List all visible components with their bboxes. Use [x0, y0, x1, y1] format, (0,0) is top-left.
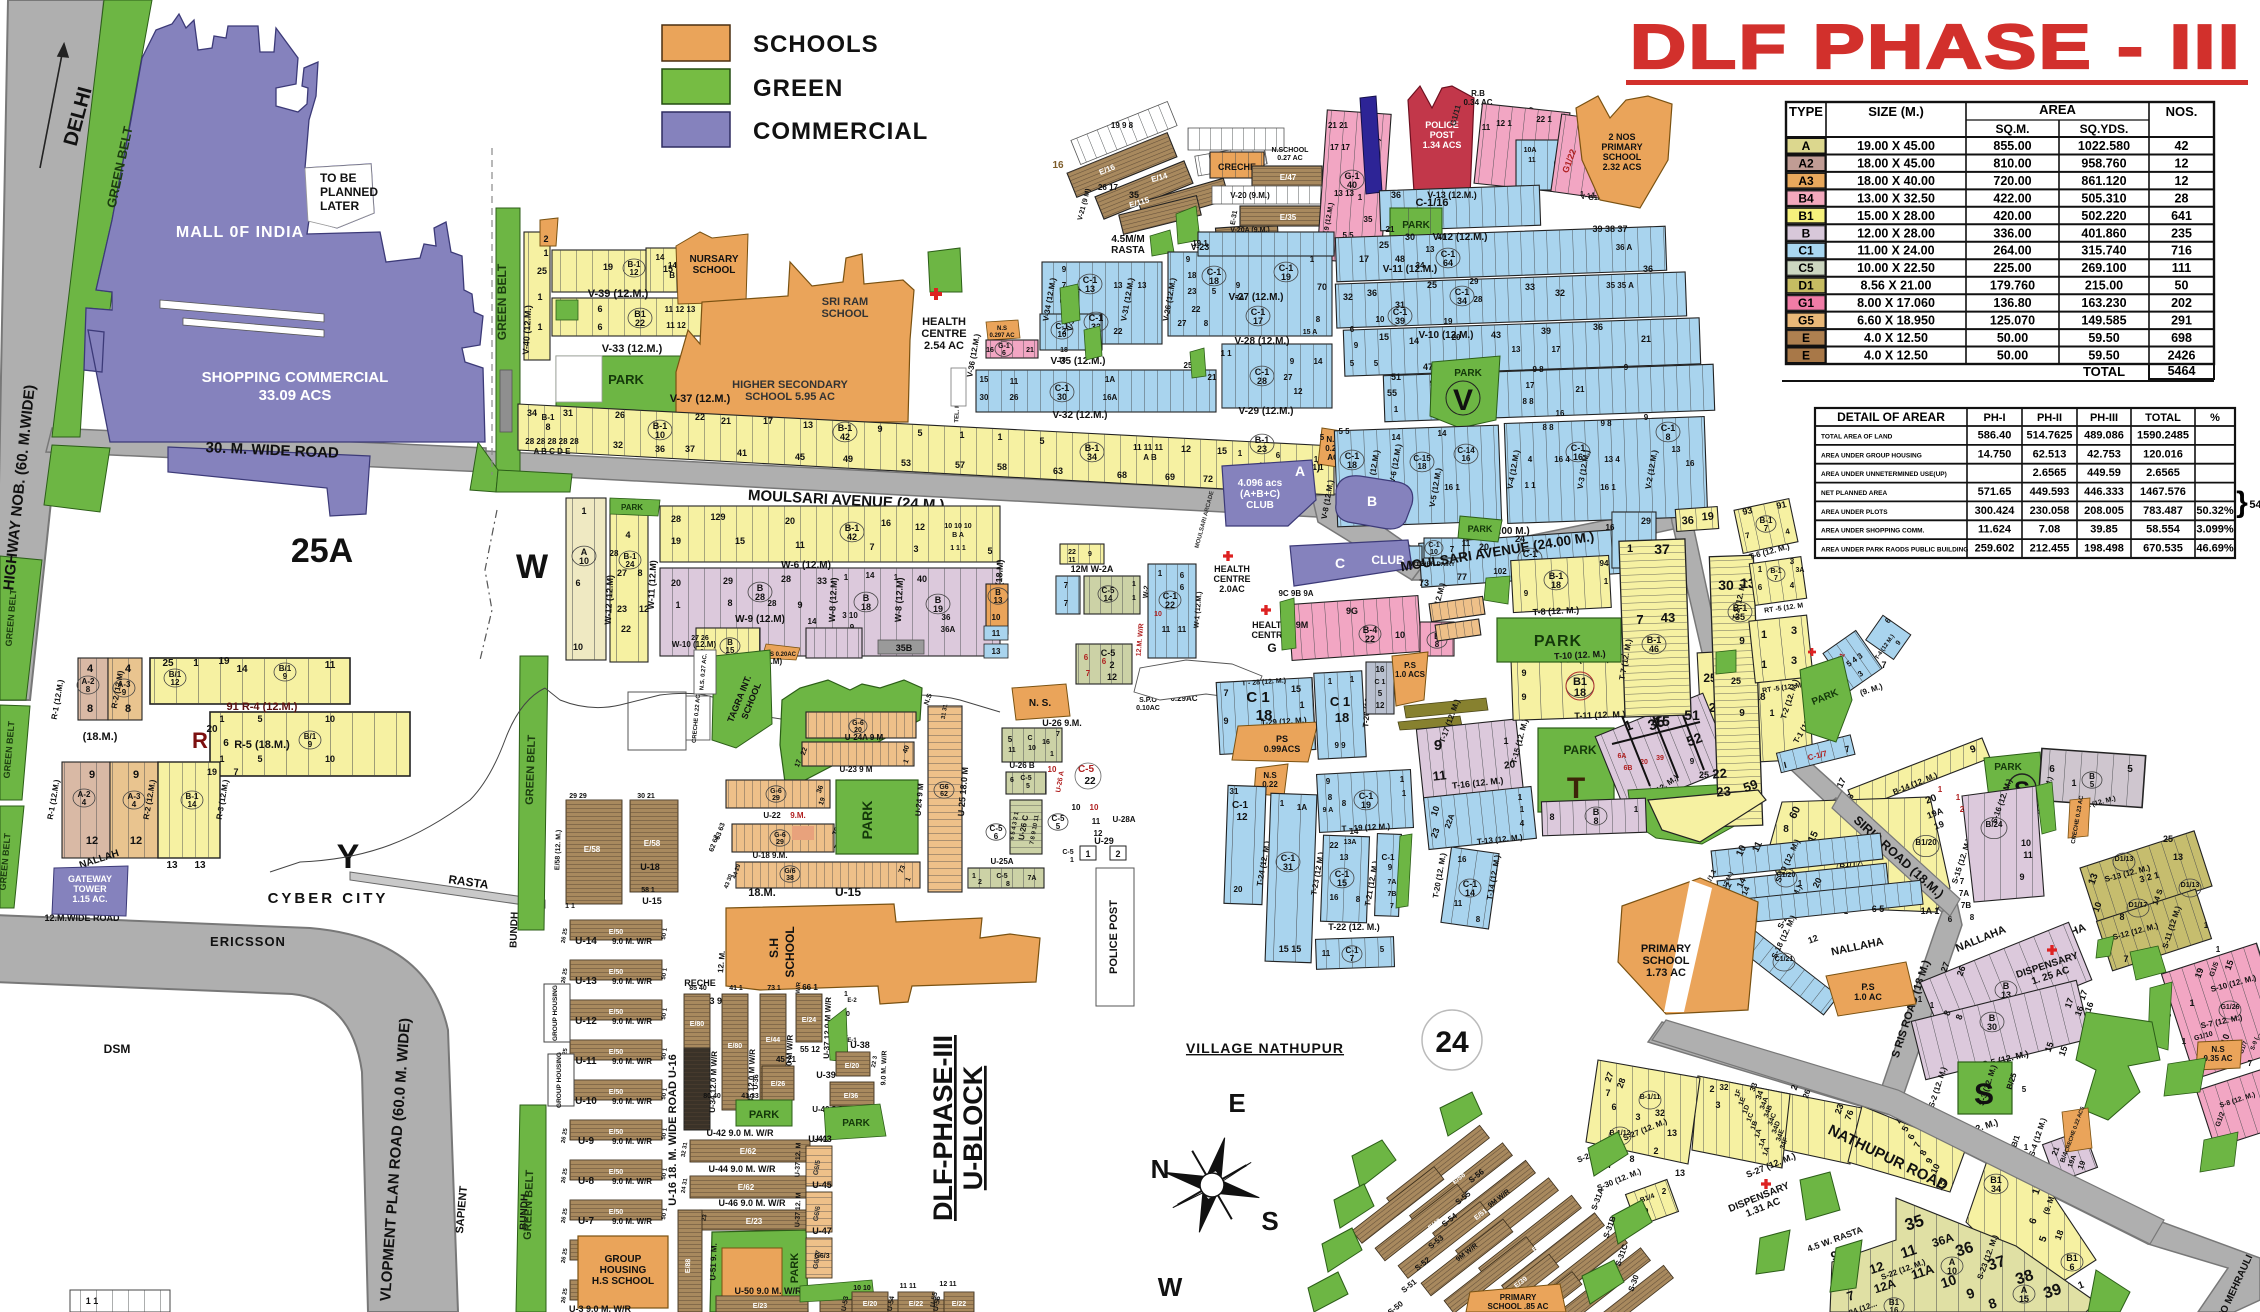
- svg-text:16: 16: [881, 518, 891, 528]
- svg-text:5: 5: [1378, 689, 1383, 698]
- svg-text:AREA: AREA: [2039, 102, 2076, 117]
- svg-text:7B: 7B: [1961, 901, 1971, 910]
- svg-text:120.016: 120.016: [2143, 448, 2183, 460]
- svg-text:G-1: G-1: [998, 343, 1010, 350]
- svg-text:22: 22: [1114, 327, 1123, 336]
- svg-text:C-5: C-5: [996, 873, 1007, 880]
- svg-text:7: 7: [2123, 954, 2128, 964]
- svg-text:1: 1: [219, 754, 224, 764]
- svg-text:8: 8: [545, 422, 550, 432]
- svg-text:16: 16: [1556, 409, 1565, 418]
- svg-text:13: 13: [166, 860, 178, 871]
- svg-text:C: C: [1027, 735, 1032, 742]
- svg-text:25: 25: [2163, 834, 2173, 844]
- svg-text:U-10: U-10: [575, 1096, 597, 1107]
- svg-text:43: 43: [1661, 610, 1675, 625]
- svg-text:1: 1: [537, 292, 542, 302]
- svg-text:9.0 M. W/R: 9.0 M. W/R: [612, 1017, 652, 1026]
- svg-text:15: 15: [980, 375, 989, 384]
- svg-text:14: 14: [236, 664, 248, 675]
- svg-text:9: 9: [1521, 692, 1526, 702]
- svg-text:U-7: U-7: [578, 1216, 595, 1227]
- svg-text:28: 28: [768, 599, 777, 608]
- svg-text:G6: G6: [939, 784, 948, 791]
- svg-text:9: 9: [877, 424, 882, 434]
- svg-text:6: 6: [2069, 1262, 2074, 1272]
- svg-text:GROUP HOUSING: GROUP HOUSING: [556, 1052, 563, 1108]
- svg-text:16: 16: [1042, 739, 1050, 746]
- svg-text:DSM: DSM: [104, 1042, 131, 1056]
- svg-text:3 10: 3 10: [842, 611, 858, 620]
- svg-text:GATEWAYTOWER1.15 AC.: GATEWAYTOWER1.15 AC.: [68, 874, 112, 904]
- svg-text:E/80: E/80: [728, 1043, 743, 1050]
- svg-text:28 28 28 28 28: 28 28 28 28 28: [525, 437, 579, 446]
- svg-text:TOTAL: TOTAL: [2145, 412, 2181, 424]
- svg-text:489.086: 489.086: [2084, 429, 2124, 441]
- svg-text:31: 31: [1283, 862, 1293, 872]
- svg-text:49: 49: [843, 454, 853, 464]
- svg-text:37: 37: [1654, 541, 1670, 557]
- svg-text:42.753: 42.753: [2087, 448, 2121, 460]
- svg-text:E/23: E/23: [746, 1217, 763, 1226]
- svg-text:V: V: [1453, 384, 1473, 417]
- svg-text:31: 31: [563, 408, 573, 418]
- svg-text:19: 19: [1361, 800, 1371, 810]
- svg-text:39: 39: [1541, 326, 1551, 336]
- svg-text:A3: A3: [1798, 174, 1814, 188]
- svg-text:7: 7: [1086, 669, 1091, 678]
- svg-text:11: 11: [795, 540, 805, 550]
- svg-text:420.00: 420.00: [1993, 209, 2031, 223]
- svg-text:14: 14: [808, 617, 817, 626]
- svg-text:12: 12: [915, 522, 925, 532]
- svg-text:7A: 7A: [1236, 295, 1245, 302]
- svg-text:14: 14: [1438, 429, 1447, 438]
- svg-text:15: 15: [1379, 332, 1389, 342]
- svg-text:5: 5: [1320, 433, 1325, 442]
- svg-text:20: 20: [671, 578, 681, 588]
- svg-text:E/50: E/50: [609, 1209, 624, 1216]
- svg-text:17: 17: [763, 416, 773, 426]
- svg-text:48: 48: [1395, 254, 1405, 264]
- svg-text:9: 9: [1624, 363, 1629, 372]
- svg-text:9.0 M. W/R: 9.0 M. W/R: [612, 1097, 652, 1106]
- svg-text:29: 29: [1470, 277, 1479, 286]
- svg-text:33: 33: [817, 576, 827, 586]
- svg-text:85 40: 85 40: [689, 985, 707, 992]
- svg-text:13: 13: [1512, 345, 1521, 354]
- svg-text:1: 1: [1761, 629, 1767, 641]
- svg-text:U-29: U-29: [1094, 836, 1114, 846]
- svg-text:1: 1: [894, 573, 899, 582]
- svg-text:6: 6: [1350, 325, 1355, 334]
- svg-text:S: S: [1261, 1206, 1278, 1236]
- svg-text:1: 1: [1518, 793, 1523, 802]
- svg-text:5: 5: [257, 754, 262, 764]
- svg-text:13A: 13A: [1344, 839, 1357, 846]
- svg-text:25: 25: [1731, 676, 1741, 686]
- svg-text:D1: D1: [1798, 279, 1814, 293]
- svg-text:G-6: G-6: [774, 832, 786, 839]
- svg-text:2: 2: [1653, 1146, 1658, 1156]
- svg-text:62: 62: [940, 791, 948, 798]
- svg-text:1: 1: [1050, 751, 1054, 758]
- svg-text:11: 11: [1178, 625, 1187, 634]
- svg-text:810.00: 810.00: [1993, 156, 2031, 170]
- svg-text:GREEN BELT: GREEN BELT: [495, 263, 509, 340]
- svg-text:5: 5: [1212, 287, 1217, 296]
- svg-text:36: 36: [1593, 322, 1603, 332]
- svg-text:9: 9: [1326, 777, 1331, 786]
- svg-text:C-1: C-1: [1232, 800, 1249, 811]
- svg-text:25: 25: [537, 266, 547, 276]
- svg-text:V-29 (12.M.): V-29 (12.M.): [1238, 406, 1293, 417]
- svg-text:149.585: 149.585: [2081, 314, 2126, 328]
- svg-text:15: 15: [1337, 878, 1347, 888]
- svg-text:U-18 9.M.: U-18 9.M.: [752, 851, 787, 860]
- svg-text:U-BLOCK: U-BLOCK: [958, 1065, 988, 1190]
- svg-text:6: 6: [1084, 653, 1089, 662]
- svg-text:1: 1: [543, 248, 548, 258]
- svg-text:W-10 (12.M): W-10 (12.M): [672, 640, 717, 649]
- svg-text:12: 12: [2175, 174, 2189, 188]
- svg-text:NURSARYSCHOOL: NURSARYSCHOOL: [689, 254, 738, 276]
- svg-text:12: 12: [130, 835, 142, 847]
- svg-text:14: 14: [1350, 827, 1359, 836]
- svg-text:12 1: 12 1: [1496, 119, 1512, 128]
- svg-text:39.85: 39.85: [2090, 524, 2118, 536]
- svg-text:HIGHER SECONDARYSCHOOL 5.95 A: HIGHER SECONDARYSCHOOL 5.95 AC: [732, 379, 848, 403]
- svg-text:2: 2: [1960, 805, 1965, 814]
- svg-text:E/50: E/50: [609, 1009, 624, 1016]
- svg-text:N. S.: N. S.: [1029, 698, 1051, 709]
- svg-text:69: 69: [1165, 472, 1175, 482]
- svg-text:10: 10: [1028, 745, 1036, 752]
- svg-text:28: 28: [2175, 191, 2189, 205]
- svg-text:19: 19: [1701, 511, 1714, 524]
- svg-text:13: 13: [803, 420, 813, 430]
- svg-text:7B: 7B: [1388, 891, 1397, 898]
- svg-text:20: 20: [206, 724, 218, 735]
- svg-text:TOTAL: TOTAL: [2083, 364, 2125, 379]
- svg-text:2: 2: [1115, 849, 1120, 859]
- svg-text:37: 37: [685, 444, 695, 454]
- svg-text:29: 29: [772, 795, 780, 802]
- svg-text:59.50: 59.50: [2088, 349, 2119, 363]
- svg-text:6B: 6B: [1624, 765, 1633, 772]
- svg-text:7: 7: [1390, 903, 1394, 910]
- svg-text:1A: 1A: [1105, 375, 1115, 384]
- svg-text:VILLAGE NATHUPUR: VILLAGE NATHUPUR: [1186, 1040, 1344, 1056]
- svg-text:41 1: 41 1: [729, 985, 743, 992]
- svg-text:4: 4: [87, 663, 94, 675]
- svg-text:17: 17: [1552, 345, 1561, 354]
- svg-text:5: 5: [2090, 780, 2095, 789]
- svg-text:8.00 X 17.060: 8.00 X 17.060: [1857, 296, 1935, 310]
- svg-text:U-42 9.0 M. W/R: U-42 9.0 M. W/R: [706, 1128, 774, 1138]
- svg-text:21 21: 21 21: [1328, 121, 1349, 130]
- svg-text:AREA UNDER SHOPPING COMM.: AREA UNDER SHOPPING COMM.: [1821, 528, 1925, 535]
- svg-text:PARK: PARK: [859, 801, 875, 840]
- svg-text:24: 24: [626, 560, 635, 569]
- svg-text:28: 28: [1474, 295, 1483, 304]
- svg-text:15.00 X 28.00: 15.00 X 28.00: [1857, 209, 1935, 223]
- svg-text:SQ.M.: SQ.M.: [1995, 122, 2029, 136]
- svg-text:102: 102: [1493, 567, 1507, 576]
- svg-text:6: 6: [575, 578, 580, 588]
- svg-text:7: 7: [1064, 581, 1069, 590]
- svg-text:23: 23: [1716, 783, 1732, 799]
- svg-text:22: 22: [1068, 549, 1076, 556]
- svg-text:8: 8: [1549, 812, 1554, 822]
- svg-text:15: 15: [1654, 713, 1670, 729]
- svg-text:41 33: 41 33: [741, 1093, 759, 1100]
- svg-text:POLICE POST: POLICE POST: [1108, 900, 1120, 974]
- svg-text:8: 8: [1476, 915, 1481, 924]
- svg-text:22: 22: [1165, 600, 1175, 610]
- svg-text:7: 7: [869, 542, 874, 552]
- svg-text:11: 11: [1482, 123, 1491, 132]
- svg-text:179.760: 179.760: [1990, 279, 2035, 293]
- svg-text:51: 51: [1391, 372, 1401, 382]
- svg-text:6: 6: [223, 738, 229, 749]
- svg-text:16: 16: [1330, 893, 1339, 902]
- svg-text:9: 9: [1644, 413, 1649, 422]
- svg-text:2: 2: [543, 234, 548, 244]
- svg-text:PARK: PARK: [1563, 743, 1596, 757]
- svg-text:U-25A: U-25A: [990, 857, 1013, 866]
- svg-text:9.0 M. W/R: 9.0 M. W/R: [612, 1137, 652, 1146]
- svg-text:SCHOOL: SCHOOL: [783, 926, 797, 977]
- svg-text:6 5: 6 5: [1872, 904, 1885, 914]
- svg-text:66 1: 66 1: [802, 983, 818, 992]
- svg-text:11 11 11: 11 11 11: [1133, 443, 1163, 452]
- svg-text:2.6565: 2.6565: [2146, 467, 2180, 479]
- svg-text:9: 9: [1290, 357, 1295, 366]
- svg-text:15: 15: [1217, 446, 1227, 456]
- svg-text:670.535: 670.535: [2143, 543, 2183, 555]
- svg-text:12: 12: [639, 604, 649, 614]
- svg-text:E/22: E/22: [909, 1301, 924, 1308]
- svg-text:9: 9: [1223, 716, 1228, 726]
- svg-text:26: 26: [1010, 393, 1019, 402]
- svg-text:6: 6: [1010, 777, 1014, 784]
- svg-text:U-9: U-9: [578, 1136, 595, 1147]
- svg-text:63: 63: [1053, 466, 1063, 476]
- svg-text:163.230: 163.230: [2081, 296, 2126, 310]
- svg-text:D1/13: D1/13: [2115, 856, 2134, 863]
- svg-text:8: 8: [1204, 319, 1209, 328]
- svg-text:34: 34: [1087, 452, 1097, 462]
- svg-text:586.40: 586.40: [1978, 429, 2012, 441]
- svg-text:5: 5: [2127, 764, 2133, 775]
- svg-text:25: 25: [162, 658, 174, 669]
- svg-text:19.00 X 45.00: 19.00 X 45.00: [1857, 139, 1935, 153]
- svg-text:80 40: 80 40: [703, 1093, 721, 1100]
- svg-text:GREEN BELT: GREEN BELT: [524, 734, 538, 805]
- svg-text:V-20 (9.M.): V-20 (9.M.): [1230, 191, 1270, 200]
- svg-text:401.860: 401.860: [2081, 226, 2126, 240]
- svg-text:861.120: 861.120: [2081, 174, 2126, 188]
- svg-text:1: 1: [1627, 543, 1633, 555]
- svg-text:7: 7: [1960, 877, 1965, 886]
- svg-text:1: 1: [1938, 785, 1943, 794]
- svg-text:13: 13: [194, 860, 206, 871]
- svg-text:B A: B A: [952, 532, 964, 539]
- svg-text:13: 13: [1085, 284, 1095, 294]
- svg-text:19: 19: [1281, 272, 1291, 282]
- svg-text:9.M.: 9.M.: [790, 811, 806, 820]
- svg-text:12 11: 12 11: [939, 1281, 956, 1288]
- svg-text:U-39: U-39: [816, 1070, 836, 1080]
- svg-text:E: E: [1802, 331, 1810, 345]
- svg-text:23: 23: [1188, 287, 1197, 296]
- svg-text:W: W: [516, 548, 549, 586]
- svg-text:198.498: 198.498: [2084, 543, 2124, 555]
- svg-text:R-5 (18.M.): R-5 (18.M.): [234, 739, 290, 751]
- svg-text:G-6: G-6: [770, 788, 782, 795]
- svg-text:V-13 (12.M.): V-13 (12.M.): [1427, 190, 1477, 200]
- svg-text:1: 1: [1758, 565, 1763, 574]
- svg-text:1: 1: [2216, 945, 2221, 954]
- svg-text:9: 9: [2019, 872, 2024, 882]
- svg-text:17: 17: [1359, 254, 1369, 264]
- svg-text:9.0 M. W/R: 9.0 M. W/R: [612, 1217, 652, 1226]
- svg-text:4: 4: [132, 800, 137, 809]
- svg-text:42: 42: [2175, 139, 2189, 153]
- svg-text:8: 8: [1783, 824, 1789, 835]
- svg-text:21: 21: [721, 416, 731, 426]
- svg-text:235: 235: [2171, 226, 2192, 240]
- svg-text:A: A: [1295, 463, 1305, 479]
- svg-text:2: 2: [1662, 1187, 1667, 1196]
- svg-text:W-9 (12.M): W-9 (12.M): [735, 614, 785, 625]
- svg-text:50.32%: 50.32%: [2196, 505, 2234, 517]
- svg-text:1 1: 1 1: [1312, 463, 1324, 472]
- svg-text:NET PLANNED AREA: NET PLANNED AREA: [1821, 490, 1888, 497]
- svg-text:GREEN BELT: GREEN BELT: [522, 1169, 536, 1240]
- svg-text:1: 1: [193, 658, 199, 669]
- svg-text:V-32 (12.M.): V-32 (12.M.): [1052, 410, 1107, 421]
- svg-text:U-37 12. M: U-37 12. M: [794, 1142, 802, 1177]
- svg-text:U-16 18. M. WIDE ROAD U-16: U-16 18. M. WIDE ROAD U-16: [667, 1054, 679, 1206]
- svg-text:13.00 X 32.50: 13.00 X 32.50: [1857, 191, 1935, 205]
- svg-text:1: 1: [1350, 675, 1355, 684]
- svg-text:3A: 3A: [1796, 567, 1805, 574]
- svg-text:PARK: PARK: [1454, 368, 1482, 379]
- svg-text:46: 46: [1649, 644, 1659, 654]
- svg-text:B: B: [1367, 493, 1377, 509]
- svg-text:35B: 35B: [896, 643, 913, 653]
- svg-text:16: 16: [1376, 665, 1385, 674]
- svg-text:17 17: 17 17: [1330, 143, 1351, 152]
- svg-text:36: 36: [655, 444, 665, 454]
- svg-text:35 35 A: 35 35 A: [1606, 281, 1634, 290]
- svg-text:16: 16: [1686, 459, 1695, 468]
- svg-text:5: 5: [1026, 783, 1030, 790]
- svg-text:10: 10: [655, 430, 665, 440]
- svg-text:C-1: C-1: [1428, 542, 1439, 549]
- svg-text:16 4: 16 4: [1554, 455, 1570, 464]
- svg-text:14: 14: [1392, 433, 1401, 442]
- svg-text:PH-II: PH-II: [2037, 412, 2062, 424]
- svg-text:36A: 36A: [941, 625, 956, 634]
- svg-text:1467.576: 1467.576: [2140, 486, 2186, 498]
- svg-text:G/6: G/6: [784, 868, 795, 875]
- svg-text:BUNDH: BUNDH: [508, 912, 520, 948]
- svg-text:12: 12: [1376, 701, 1385, 710]
- svg-text:8: 8: [87, 703, 93, 715]
- svg-text:19: 19: [207, 767, 217, 777]
- svg-text:58 1: 58 1: [641, 887, 655, 894]
- svg-text:AREA UNDER PARK RAODS PUBLIC B: AREA UNDER PARK RAODS PUBLIC BUILDING: [1821, 547, 1968, 554]
- svg-text:C1/20: C1/20: [1777, 872, 1796, 879]
- svg-text:9G: 9G: [1346, 606, 1358, 616]
- svg-text:8 8: 8 8: [1542, 423, 1554, 432]
- svg-text:DLF-PHASE-III: DLF-PHASE-III: [928, 1035, 958, 1221]
- svg-text:9: 9: [1388, 863, 1393, 872]
- svg-text:10: 10: [1154, 611, 1162, 618]
- svg-text:28: 28: [781, 574, 791, 584]
- svg-text:12.00 X 28.00: 12.00 X 28.00: [1857, 226, 1935, 240]
- svg-text:6: 6: [1180, 571, 1185, 580]
- svg-text:1: 1: [1604, 577, 1609, 586]
- svg-text:50.00: 50.00: [1997, 331, 2028, 345]
- svg-text:18: 18: [861, 602, 871, 612]
- svg-text:291: 291: [2171, 314, 2192, 328]
- svg-text:NOS.: NOS.: [2166, 104, 2198, 119]
- svg-text:28: 28: [1257, 376, 1267, 386]
- svg-text:19: 19: [218, 656, 230, 667]
- svg-text:TYPE: TYPE: [1789, 104, 1823, 119]
- svg-text:1590.2485: 1590.2485: [2137, 429, 2189, 441]
- svg-text:6: 6: [1276, 451, 1281, 460]
- svg-text:9: 9: [1739, 708, 1745, 719]
- svg-text:E/88: E/88: [685, 1259, 693, 1274]
- svg-text:SCHOOLS: SCHOOLS: [753, 31, 879, 58]
- svg-text:10: 10: [2021, 838, 2031, 848]
- svg-text:2: 2: [1109, 660, 1114, 670]
- svg-text:8: 8: [2119, 912, 2124, 922]
- svg-text:14: 14: [656, 253, 665, 262]
- svg-text:502.220: 502.220: [2081, 209, 2126, 223]
- svg-text:14: 14: [188, 800, 197, 809]
- svg-text:PARK: PARK: [1994, 762, 2022, 773]
- svg-text:C-5: C-5: [1062, 849, 1073, 856]
- svg-text:58: 58: [997, 462, 1007, 472]
- svg-text:50.00: 50.00: [1997, 349, 2028, 363]
- svg-text:T-22 (12. M.): T-22 (12. M.): [1328, 922, 1380, 932]
- svg-text:7: 7: [1881, 660, 1886, 670]
- svg-text:13 13: 13 13: [1334, 189, 1355, 198]
- svg-text:1 1: 1 1: [1524, 481, 1536, 490]
- svg-text:93: 93: [1741, 505, 1753, 517]
- svg-text:PARK: PARK: [621, 503, 643, 512]
- svg-text:E-2: E-2: [847, 998, 857, 1004]
- svg-text:46.69%: 46.69%: [2196, 543, 2234, 555]
- svg-text:W-6 (12.M): W-6 (12.M): [781, 560, 831, 571]
- svg-text:70: 70: [1317, 282, 1327, 292]
- svg-text:10 10 10: 10 10 10: [944, 523, 971, 530]
- svg-text:B: B: [1802, 226, 1811, 240]
- svg-text:8: 8: [637, 568, 642, 578]
- svg-text:43: 43: [1491, 330, 1501, 340]
- svg-text:2.6565: 2.6565: [2033, 467, 2067, 479]
- svg-text:U-44 9.0 M. W/R: U-44 9.0 M. W/R: [708, 1164, 776, 1174]
- svg-text:783.487: 783.487: [2143, 505, 2183, 517]
- svg-text:13: 13: [1426, 245, 1435, 254]
- svg-text:U-3 9.0 M. W/R: U-3 9.0 M. W/R: [569, 1304, 632, 1312]
